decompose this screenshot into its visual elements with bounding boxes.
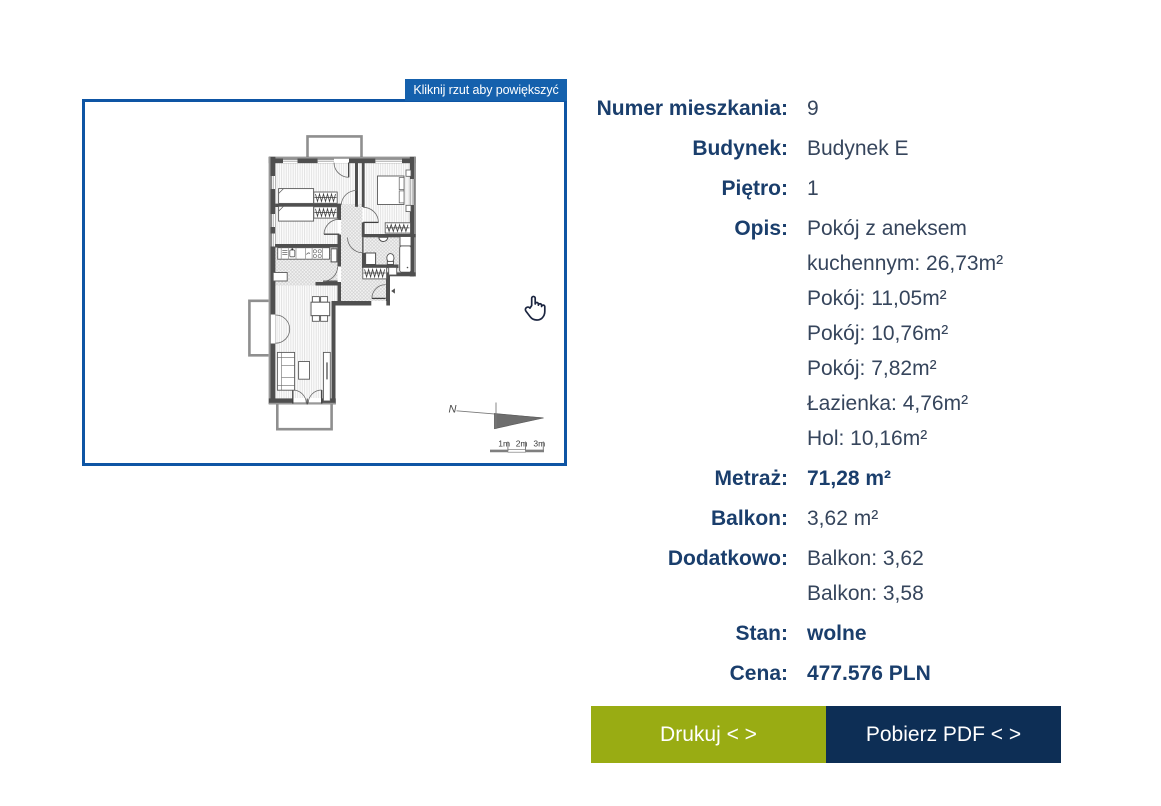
svg-text:N: N <box>449 404 457 416</box>
